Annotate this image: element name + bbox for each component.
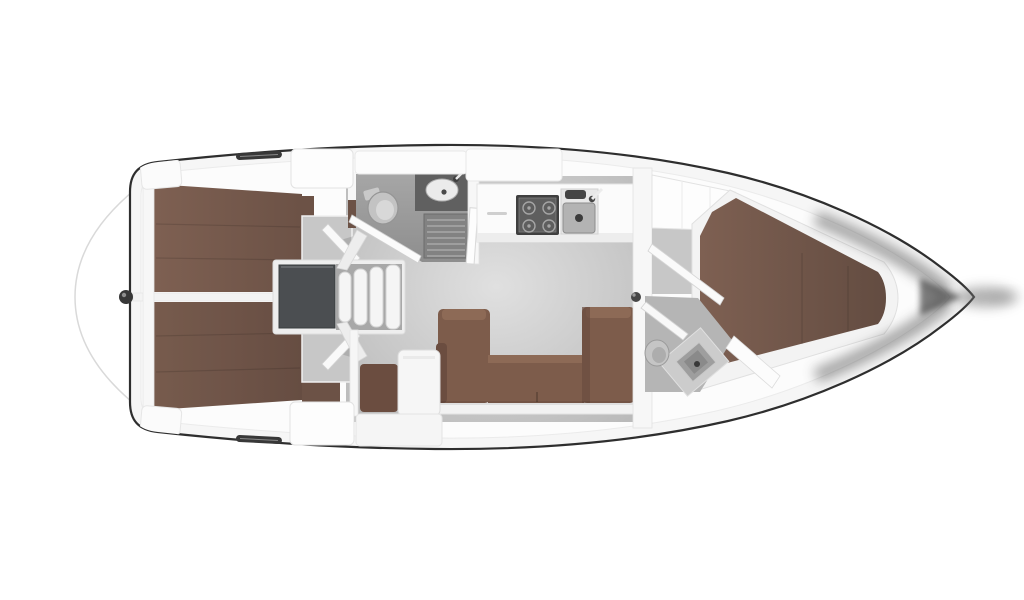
sink-small-basin <box>565 190 586 199</box>
stern-fitting <box>119 290 133 304</box>
nav-seat <box>360 364 398 412</box>
nav-cabinet <box>356 414 442 446</box>
step-4 <box>386 265 400 329</box>
basin-drain <box>441 189 446 194</box>
deck-locker-top-1 <box>291 149 353 188</box>
berth-divider-bulkhead <box>133 293 278 301</box>
deck-locker-top-3 <box>466 149 562 181</box>
bow-tip-shadow-far <box>988 292 1020 302</box>
deck-locker-top-2 <box>355 151 467 174</box>
step-2 <box>354 269 367 325</box>
engine-compartment <box>279 265 335 328</box>
stern-locker-bottom <box>140 405 182 435</box>
grab-post-highlight <box>632 293 635 296</box>
settee-shadow <box>438 401 634 405</box>
chart-table-edge <box>403 356 435 359</box>
chart-table <box>398 350 440 416</box>
washbasin-aft <box>426 179 458 201</box>
yacht-floorplan <box>0 0 1024 600</box>
step-1 <box>339 272 351 322</box>
stern-fitting-highlight <box>122 293 126 297</box>
basin-drain <box>694 361 700 367</box>
stove <box>516 195 559 235</box>
berth-corner-port <box>302 196 314 218</box>
settee-edge-right <box>582 307 590 403</box>
shower-grate <box>424 214 468 258</box>
deck-locker-bottom-1 <box>290 402 354 445</box>
settee-back-right <box>586 307 631 318</box>
galley <box>477 184 634 242</box>
galley-sink <box>561 189 602 234</box>
galley-handle <box>487 212 507 215</box>
grab-post <box>631 292 641 302</box>
companionway-steps <box>339 265 400 329</box>
toilet-forward-bowl <box>652 347 666 363</box>
settee-back-center <box>488 355 584 363</box>
stern-headwall <box>143 181 154 415</box>
toilet-aft-bowl <box>376 200 394 220</box>
yacht-floorplan-image <box>0 0 1024 600</box>
step-3 <box>370 267 383 327</box>
sink-drain <box>575 214 583 222</box>
settee-back-left <box>442 309 486 320</box>
